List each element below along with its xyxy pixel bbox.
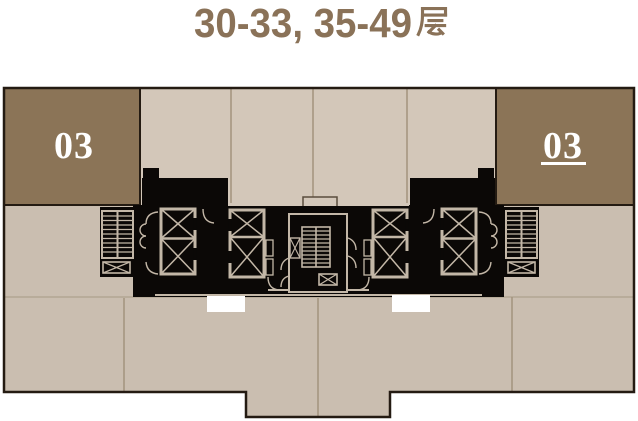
page-title-text: 30-33, 35-49 bbox=[194, 0, 412, 46]
unit-03-right-label: 03 bbox=[543, 125, 583, 167]
unit-03-left-label: 03 bbox=[54, 125, 94, 167]
unit-03-right-underline bbox=[541, 162, 586, 165]
floor-plan-page: 30-33, 35-49 bbox=[0, 0, 638, 421]
glyph-stroke bbox=[418, 9, 422, 35]
floor-character-glyph bbox=[418, 9, 445, 35]
floor-plan: 30-33, 35-49 bbox=[0, 0, 638, 421]
glyph-stroke bbox=[429, 32, 440, 34]
balcony-notch-right bbox=[392, 295, 430, 312]
balcony-notch-left bbox=[207, 296, 245, 312]
